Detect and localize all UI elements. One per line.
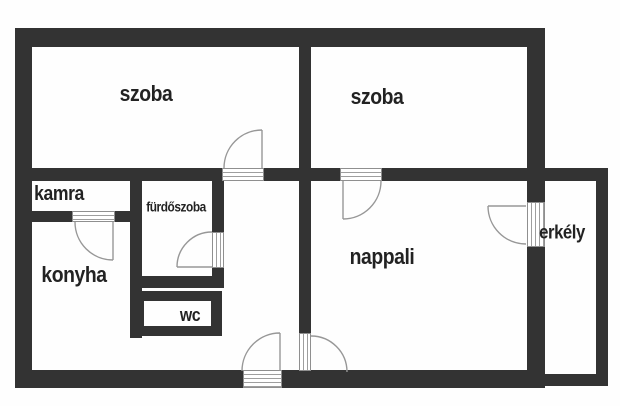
room-label-szoba-1: szoba <box>120 83 173 105</box>
door-arc-kamra <box>75 222 113 260</box>
room-label-erkely: erkély <box>539 224 585 243</box>
room-label-wc: wc <box>180 306 200 324</box>
door-arc-szoba-2 <box>343 181 381 219</box>
room-label-szoba-2: szoba <box>351 86 404 108</box>
door-arc-furdoszoba <box>177 232 212 267</box>
door-arc-szoba-1 <box>224 130 262 168</box>
door-swing-layer <box>0 0 620 406</box>
door-arc-erkely <box>488 206 526 244</box>
room-label-furdoszoba: fürdőszoba <box>146 200 206 214</box>
door-arc-nappali <box>311 336 347 372</box>
room-label-kamra: kamra <box>34 184 84 204</box>
floor-plan: szoba szoba kamra fürdőszoba konyha wc n… <box>0 0 620 406</box>
room-label-nappali: nappali <box>350 246 415 268</box>
door-arc-entrance <box>242 333 280 371</box>
room-label-konyha: konyha <box>41 264 106 286</box>
